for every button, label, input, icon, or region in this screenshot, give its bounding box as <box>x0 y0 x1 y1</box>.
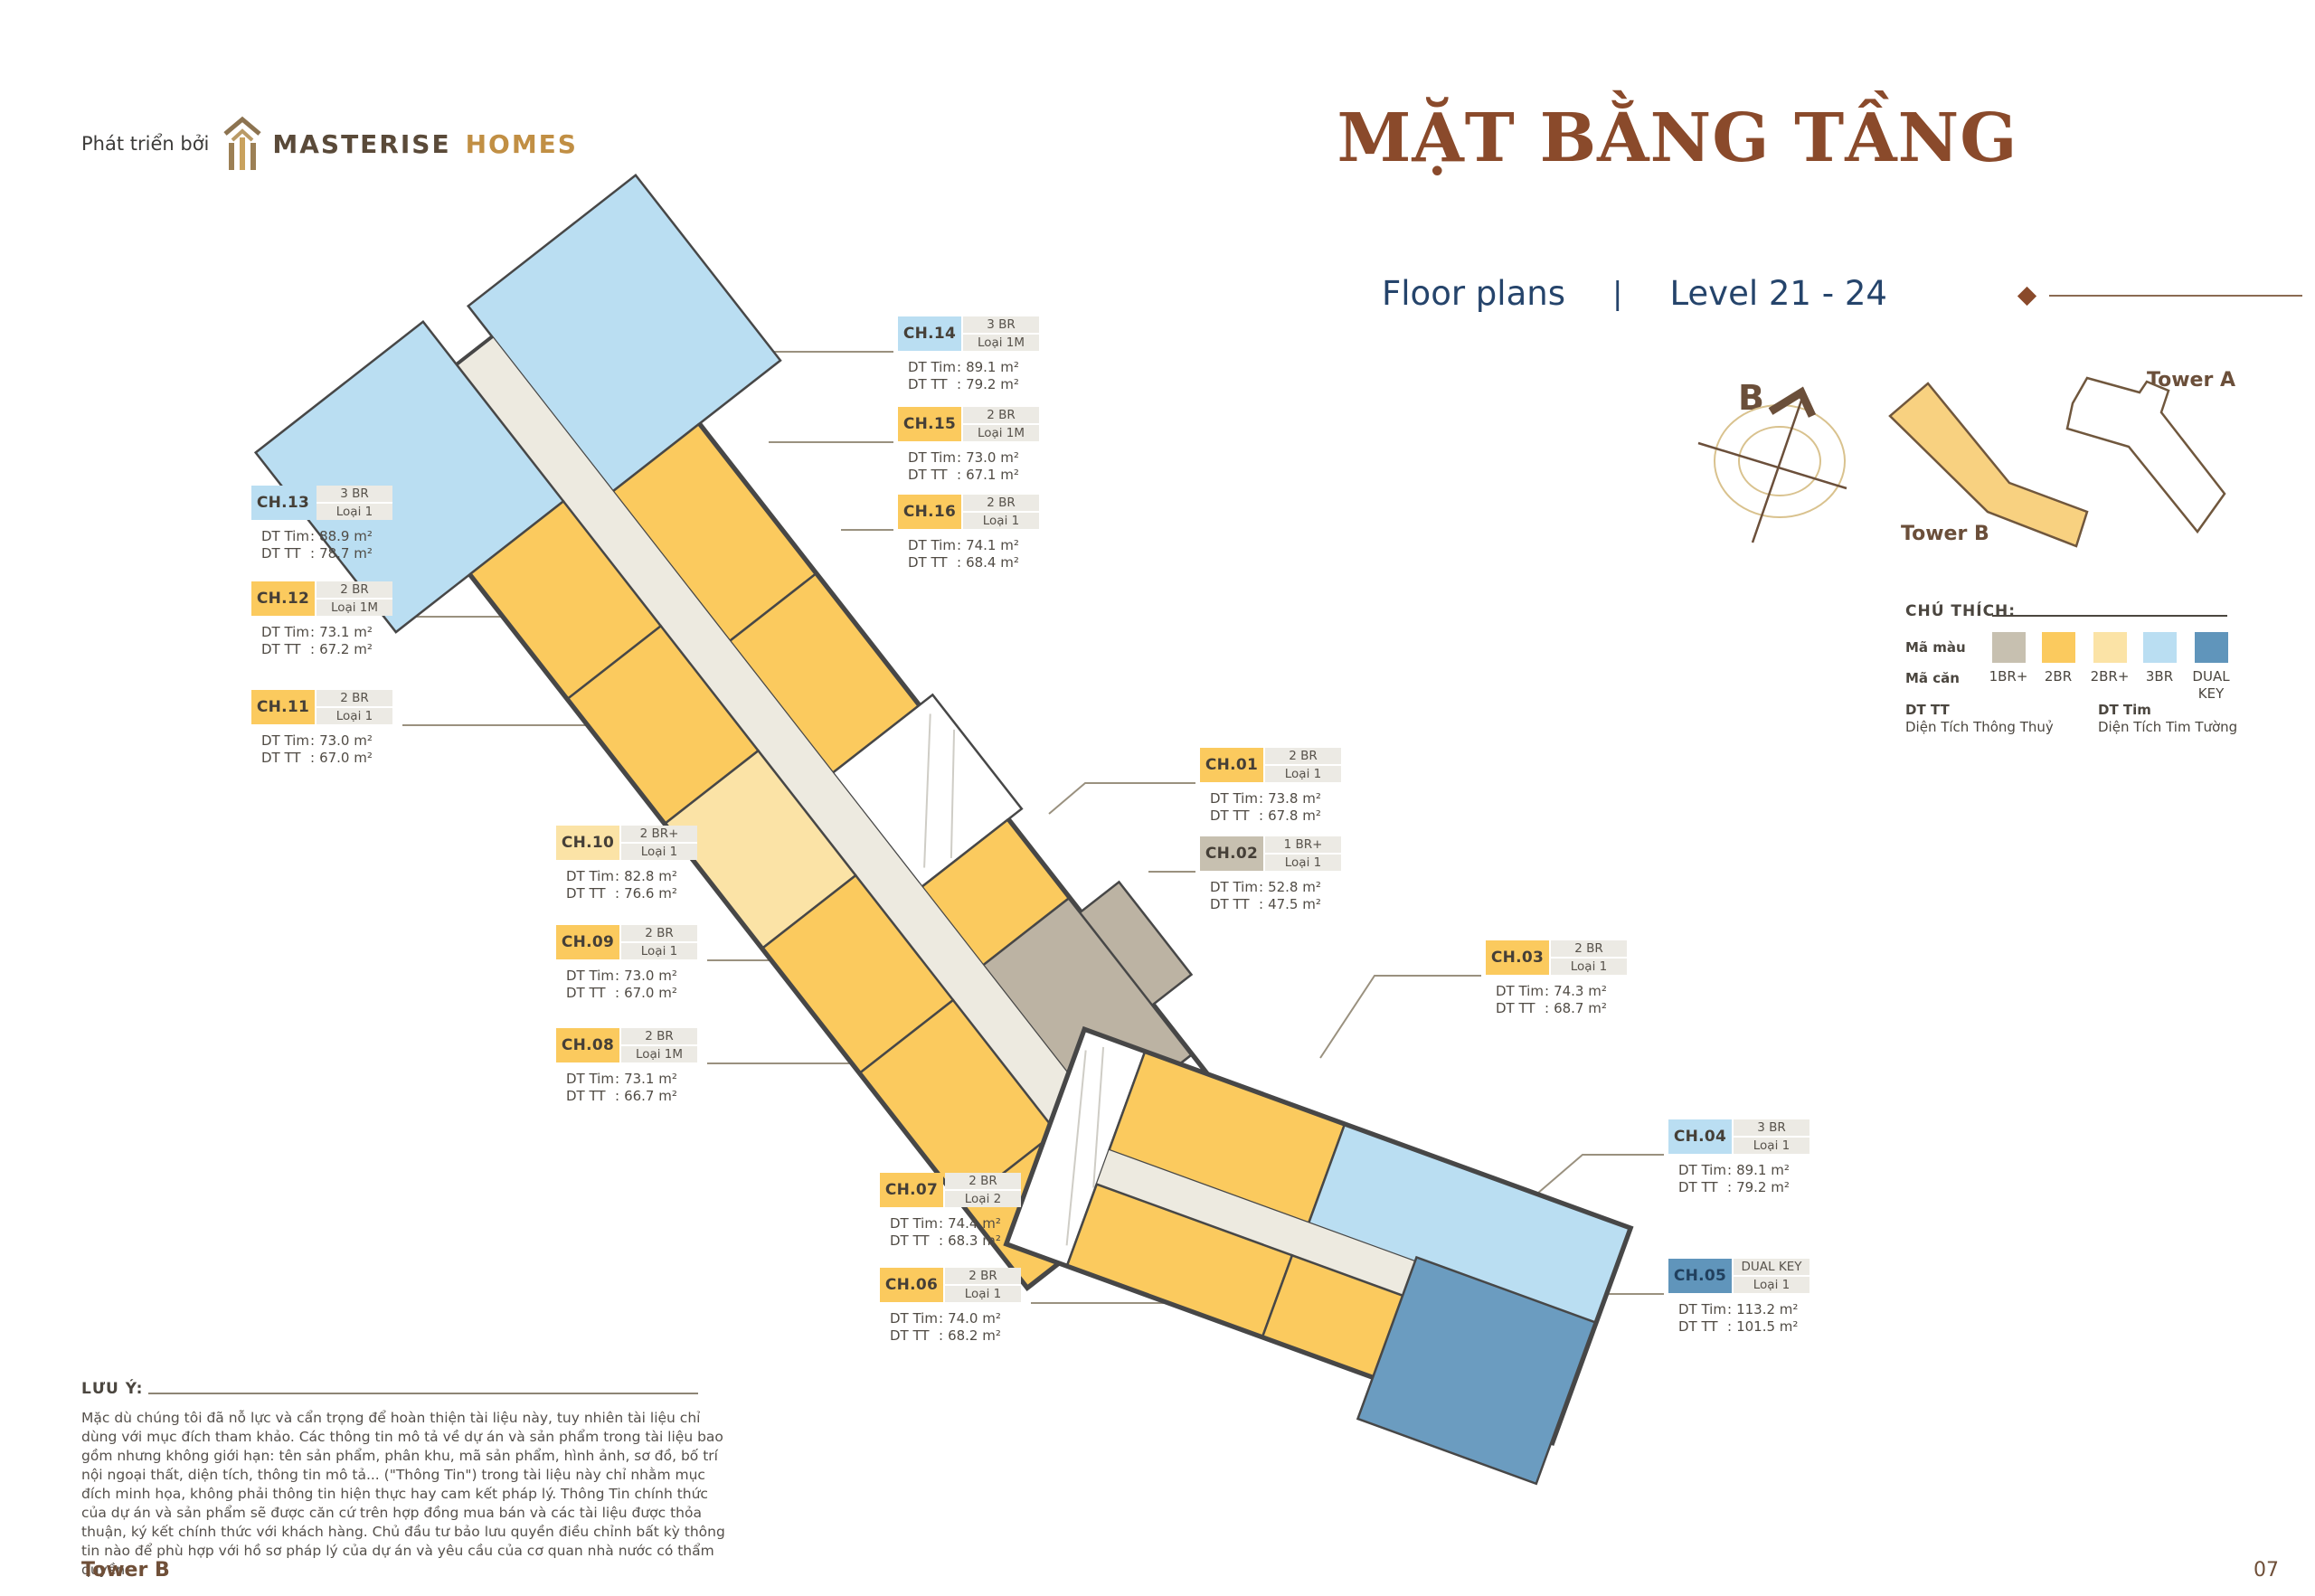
colon: : <box>615 985 619 1002</box>
unit-label-ch16: CH.16 2 BR Loại 1 DT Tim:74.1 m² DT TT:6… <box>898 495 1052 571</box>
dt-tim-value: 73.0 m² <box>319 732 373 750</box>
unit-bed-type: 2 BR <box>621 925 697 941</box>
unit-bed-type: 2 BR <box>317 690 392 706</box>
unit-variant: Loại 1 <box>1265 764 1341 782</box>
unit-code: CH.09 <box>556 925 619 959</box>
dt-tim-value: 89.1 m² <box>1736 1162 1790 1179</box>
colon: : <box>1727 1179 1732 1196</box>
unit-label-ch13: CH.13 3 BR Loại 1 DT Tim:88.9 m² DT TT:7… <box>251 486 405 562</box>
unit-bed-type: 3 BR <box>317 486 392 502</box>
unit-bed-type: 1 BR+ <box>1265 836 1341 853</box>
unit-code: CH.06 <box>880 1268 943 1302</box>
colon: : <box>615 1071 619 1088</box>
dt-tim-value: 73.1 m² <box>319 624 373 641</box>
colon: : <box>615 868 619 885</box>
dt-tt-label: DT TT <box>1210 896 1259 913</box>
unit-type-chip: 3 BR Loại 1 <box>1734 1119 1809 1154</box>
unit-type-chip: 1 BR+ Loại 1 <box>1265 836 1341 871</box>
colon: : <box>1545 983 1549 1000</box>
colon: : <box>1727 1162 1732 1179</box>
dt-tt-label: DT TT <box>890 1232 939 1250</box>
unit-bed-type: 2 BR <box>963 495 1039 511</box>
colon: : <box>939 1232 943 1250</box>
unit-variant: Loại 1 <box>621 941 697 959</box>
tower-wing-lower <box>991 1028 1631 1484</box>
dt-tim-label: DT Tim <box>908 537 957 554</box>
dt-tt-label: DT TT <box>890 1327 939 1345</box>
colon: : <box>1259 879 1263 896</box>
unit-type-chip: 2 BR Loại 1M <box>621 1028 697 1062</box>
colon: : <box>310 641 315 658</box>
unit-type-chip: 2 BR+ Loại 1 <box>621 826 697 860</box>
unit-bed-type: 2 BR <box>963 407 1039 423</box>
dt-tt-label: DT TT <box>908 467 957 484</box>
colon: : <box>1545 1000 1549 1017</box>
unit-variant: Loại 1M <box>963 423 1039 441</box>
dt-tim-label: DT Tim <box>1210 879 1259 896</box>
dt-tt-label: DT TT <box>1678 1179 1727 1196</box>
unit-code: CH.03 <box>1486 940 1549 975</box>
dt-tim-value: 89.1 m² <box>966 359 1019 376</box>
dt-tim-value: 73.0 m² <box>624 968 677 985</box>
dt-tim-label: DT Tim <box>1496 983 1545 1000</box>
unit-type-chip: 2 BR Loại 1 <box>621 925 697 959</box>
unit-bed-type: 3 BR <box>1734 1119 1809 1136</box>
unit-bed-type: 2 BR <box>1265 748 1341 764</box>
dt-tt-value: 67.0 m² <box>319 750 373 767</box>
colon: : <box>957 449 961 467</box>
unit-code: CH.05 <box>1668 1259 1732 1293</box>
colon: : <box>957 467 961 484</box>
dt-tt-label: DT TT <box>908 554 957 571</box>
unit-variant: Loại 1 <box>1265 853 1341 871</box>
colon: : <box>939 1215 943 1232</box>
dt-tt-label: DT TT <box>261 545 310 562</box>
unit-label-ch03: CH.03 2 BR Loại 1 DT Tim:74.3 m² DT TT:6… <box>1486 940 1639 1017</box>
unit-type-chip: 3 BR Loại 1M <box>963 316 1039 351</box>
dt-tt-value: 66.7 m² <box>624 1088 677 1105</box>
unit-type-chip: DUAL KEY Loại 1 <box>1734 1259 1809 1293</box>
unit-type-chip: 2 BR Loại 1 <box>1551 940 1627 975</box>
dt-tim-label: DT Tim <box>261 624 310 641</box>
dt-tim-label: DT Tim <box>1678 1162 1727 1179</box>
unit-variant: Loại 1M <box>621 1044 697 1062</box>
dt-tt-value: 79.2 m² <box>1736 1179 1790 1196</box>
dt-tim-label: DT Tim <box>566 968 615 985</box>
colon: : <box>615 968 619 985</box>
dt-tim-value: 113.2 m² <box>1736 1301 1798 1318</box>
unit-variant: Loại 1M <box>317 598 392 616</box>
unit-bed-type: 2 BR <box>317 581 392 598</box>
unit-bed-type: 2 BR <box>621 1028 697 1044</box>
colon: : <box>957 554 961 571</box>
unit-bed-type: 2 BR <box>945 1173 1021 1189</box>
unit-code: CH.13 <box>251 486 315 520</box>
dt-tim-label: DT Tim <box>890 1310 939 1327</box>
unit-code: CH.04 <box>1668 1119 1732 1154</box>
colon: : <box>615 1088 619 1105</box>
dt-tim-value: 73.8 m² <box>1268 790 1321 807</box>
unit-bed-type: 2 BR+ <box>621 826 697 842</box>
colon: : <box>1259 896 1263 913</box>
dt-tim-label: DT Tim <box>261 528 310 545</box>
colon: : <box>939 1327 943 1345</box>
dt-tim-label: DT Tim <box>261 732 310 750</box>
colon: : <box>957 537 961 554</box>
colon: : <box>957 359 961 376</box>
dt-tt-value: 67.2 m² <box>319 641 373 658</box>
unit-code: CH.14 <box>898 316 961 351</box>
dt-tt-label: DT TT <box>566 885 615 902</box>
dt-tim-value: 73.0 m² <box>966 449 1019 467</box>
unit-label-ch09: CH.09 2 BR Loại 1 DT Tim:73.0 m² DT TT:6… <box>556 925 710 1002</box>
unit-code: CH.07 <box>880 1173 943 1207</box>
colon: : <box>310 624 315 641</box>
colon: : <box>1727 1318 1732 1336</box>
unit-bed-type: 3 BR <box>963 316 1039 333</box>
colon: : <box>1259 790 1263 807</box>
unit-type-chip: 2 BR Loại 1M <box>317 581 392 616</box>
unit-label-ch04: CH.04 3 BR Loại 1 DT Tim:89.1 m² DT TT:7… <box>1668 1119 1822 1196</box>
mini-tower-b-shape <box>1890 383 2087 546</box>
unit-variant: Loại 1 <box>1551 957 1627 975</box>
unit-label-ch14: CH.14 3 BR Loại 1M DT Tim:89.1 m² DT TT:… <box>898 316 1052 393</box>
unit-bed-type: DUAL KEY <box>1734 1259 1809 1275</box>
dt-tim-label: DT Tim <box>1678 1301 1727 1318</box>
unit-variant: Loại 2 <box>945 1189 1021 1207</box>
unit-type-chip: 3 BR Loại 1 <box>317 486 392 520</box>
unit-bed-type: 2 BR <box>1551 940 1627 957</box>
unit-variant: Loại 1 <box>317 706 392 724</box>
compass-icon <box>1698 392 1847 543</box>
dt-tim-label: DT Tim <box>566 1071 615 1088</box>
unit-code: CH.16 <box>898 495 961 529</box>
dt-tim-label: DT Tim <box>908 359 957 376</box>
unit-label-ch05: CH.05 DUAL KEY Loại 1 DT Tim:113.2 m² DT… <box>1668 1259 1822 1336</box>
unit-label-ch12: CH.12 2 BR Loại 1M DT Tim:73.1 m² DT TT:… <box>251 581 405 658</box>
dt-tim-value: 74.3 m² <box>1554 983 1607 1000</box>
unit-label-ch07: CH.07 2 BR Loại 2 DT Tim:74.4 m² DT TT:6… <box>880 1173 1034 1250</box>
unit-code: CH.15 <box>898 407 961 441</box>
unit-variant: Loại 1 <box>621 842 697 860</box>
dt-tim-value: 52.8 m² <box>1268 879 1321 896</box>
dt-tt-label: DT TT <box>261 750 310 767</box>
dt-tim-value: 73.1 m² <box>624 1071 677 1088</box>
dt-tt-label: DT TT <box>566 985 615 1002</box>
dt-tim-label: DT Tim <box>566 868 615 885</box>
dt-tt-label: DT TT <box>908 376 957 393</box>
dt-tim-label: DT Tim <box>908 449 957 467</box>
dt-tt-value: 67.1 m² <box>966 467 1019 484</box>
dt-tt-value: 79.2 m² <box>966 376 1019 393</box>
colon: : <box>1727 1301 1732 1318</box>
dt-tt-value: 67.0 m² <box>624 985 677 1002</box>
dt-tt-label: DT TT <box>566 1088 615 1105</box>
colon: : <box>957 376 961 393</box>
dt-tim-label: DT Tim <box>1210 790 1259 807</box>
unit-variant: Loại 1 <box>963 511 1039 529</box>
unit-type-chip: 2 BR Loại 2 <box>945 1173 1021 1207</box>
colon: : <box>310 545 315 562</box>
dt-tt-label: DT TT <box>1496 1000 1545 1017</box>
colon: : <box>310 732 315 750</box>
unit-variant: Loại 1 <box>1734 1136 1809 1154</box>
dt-tt-value: 47.5 m² <box>1268 896 1321 913</box>
unit-variant: Loại 1 <box>945 1284 1021 1302</box>
unit-type-chip: 2 BR Loại 1 <box>945 1268 1021 1302</box>
unit-variant: Loại 1 <box>317 502 392 520</box>
dt-tt-value: 68.2 m² <box>948 1327 1001 1345</box>
unit-label-ch15: CH.15 2 BR Loại 1M DT Tim:73.0 m² DT TT:… <box>898 407 1052 484</box>
dt-tim-value: 88.9 m² <box>319 528 373 545</box>
floor-plan-drawing <box>0 0 2315 1596</box>
dt-tt-value: 68.7 m² <box>1554 1000 1607 1017</box>
dt-tt-label: DT TT <box>1210 807 1259 825</box>
unit-label-ch01: CH.01 2 BR Loại 1 DT Tim:73.8 m² DT TT:6… <box>1200 748 1354 825</box>
colon: : <box>310 528 315 545</box>
unit-type-chip: 2 BR Loại 1 <box>317 690 392 724</box>
dt-tt-label: DT TT <box>261 641 310 658</box>
unit-type-chip: 2 BR Loại 1M <box>963 407 1039 441</box>
dt-tt-value: 67.8 m² <box>1268 807 1321 825</box>
unit-type-chip: 2 BR Loại 1 <box>963 495 1039 529</box>
colon: : <box>310 750 315 767</box>
dt-tim-value: 82.8 m² <box>624 868 677 885</box>
dt-tim-label: DT Tim <box>890 1215 939 1232</box>
unit-code: CH.02 <box>1200 836 1263 871</box>
unit-label-ch06: CH.06 2 BR Loại 1 DT Tim:74.0 m² DT TT:6… <box>880 1268 1034 1345</box>
unit-variant: Loại 1 <box>1734 1275 1809 1293</box>
unit-code: CH.12 <box>251 581 315 616</box>
unit-code: CH.10 <box>556 826 619 860</box>
colon: : <box>939 1310 943 1327</box>
dt-tt-value: 76.6 m² <box>624 885 677 902</box>
dt-tt-value: 68.3 m² <box>948 1232 1001 1250</box>
dt-tt-value: 101.5 m² <box>1736 1318 1798 1336</box>
unit-code: CH.01 <box>1200 748 1263 782</box>
unit-label-ch11: CH.11 2 BR Loại 1 DT Tim:73.0 m² DT TT:6… <box>251 690 405 767</box>
dt-tt-value: 78.7 m² <box>319 545 373 562</box>
unit-label-ch02: CH.02 1 BR+ Loại 1 DT Tim:52.8 m² DT TT:… <box>1200 836 1354 913</box>
unit-variant: Loại 1M <box>963 333 1039 351</box>
unit-bed-type: 2 BR <box>945 1268 1021 1284</box>
dt-tim-value: 74.4 m² <box>948 1215 1001 1232</box>
dt-tt-value: 68.4 m² <box>966 554 1019 571</box>
floor-plan-page: Phát triển bởi MASTERISE HOMES MẶT BẰNG … <box>0 0 2315 1596</box>
unit-code: CH.11 <box>251 690 315 724</box>
colon: : <box>1259 807 1263 825</box>
dt-tim-value: 74.0 m² <box>948 1310 1001 1327</box>
unit-code: CH.08 <box>556 1028 619 1062</box>
colon: : <box>615 885 619 902</box>
unit-type-chip: 2 BR Loại 1 <box>1265 748 1341 782</box>
dt-tim-value: 74.1 m² <box>966 537 1019 554</box>
unit-label-ch10: CH.10 2 BR+ Loại 1 DT Tim:82.8 m² DT TT:… <box>556 826 710 902</box>
unit-label-ch08: CH.08 2 BR Loại 1M DT Tim:73.1 m² DT TT:… <box>556 1028 710 1105</box>
dt-tt-label: DT TT <box>1678 1318 1727 1336</box>
mini-tower-a-shape <box>2067 378 2225 532</box>
